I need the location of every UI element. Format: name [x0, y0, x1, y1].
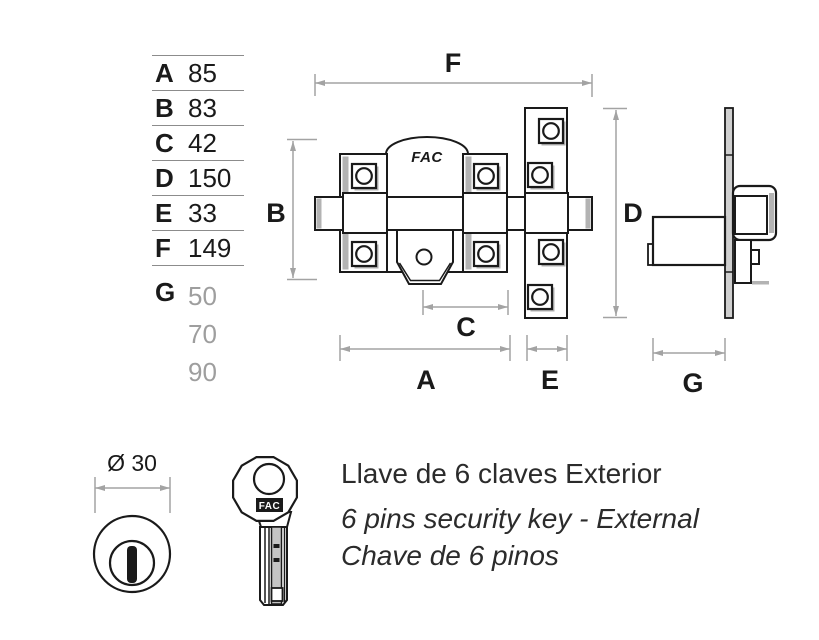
screw-washer — [539, 119, 566, 146]
screw-washer — [539, 240, 566, 267]
diameter-label: Ø 30 — [107, 450, 157, 476]
front-view-drawing: FAC — [315, 108, 592, 318]
lock-spec-sheet: A 85 B 83 C 42 D 150 E 33 F 149 G 50 70 … — [0, 0, 819, 640]
dim-label-d: D — [623, 198, 643, 228]
caption-block: Llave de 6 claves Exterior 6 pins securi… — [341, 455, 699, 574]
caption-subtitle-pt: Chave de 6 pinos — [341, 537, 699, 574]
dim-label-f: F — [445, 48, 462, 78]
screw-washer — [474, 242, 501, 269]
dim-label-c: C — [456, 312, 476, 342]
key-drawing: FAC — [233, 457, 297, 605]
keyhole — [127, 546, 137, 583]
cylinder-face-drawing — [94, 516, 170, 592]
screw-washer — [474, 164, 501, 191]
screw-washer — [352, 242, 379, 269]
screw-washer — [528, 163, 555, 190]
side-view-drawing — [648, 108, 776, 318]
brand-logo: FAC — [411, 149, 443, 166]
dim-label-a: A — [416, 365, 436, 395]
caption-subtitle-en: 6 pins security key - External — [341, 500, 699, 537]
brand-logo: FAC — [259, 501, 281, 512]
screw-washer — [528, 285, 555, 312]
dim-label-b: B — [266, 198, 286, 228]
dim-label-g: G — [682, 368, 703, 398]
caption-title-es: Llave de 6 claves Exterior — [341, 455, 699, 493]
screw-washer — [352, 164, 379, 191]
dim-label-e: E — [541, 365, 559, 395]
